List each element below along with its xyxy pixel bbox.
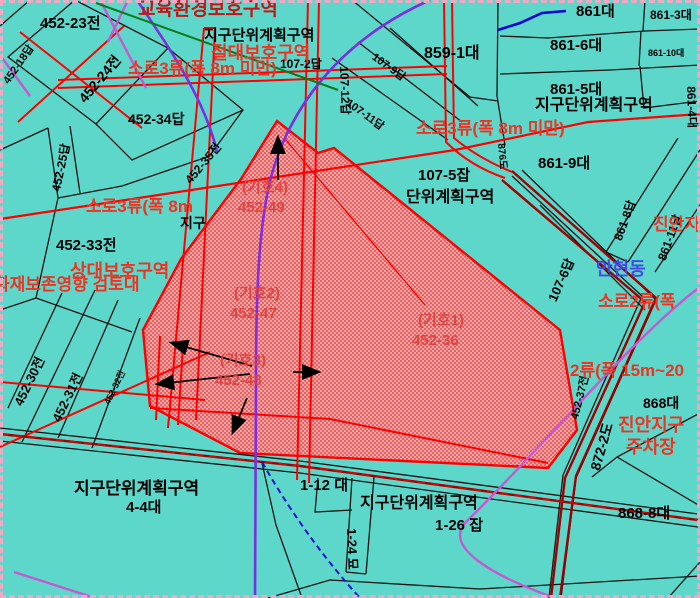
map-canvas[interactable]: 452-23전 452-18답 452-24전 452-34답 452-25답 … (0, 0, 700, 598)
parcel-label-107-5: 107-5잡 (418, 168, 470, 183)
road-label-jungro2-right: 2류(폭 15m~20 (570, 362, 684, 379)
parcel-label-861-10: 861-10대 (648, 49, 684, 58)
parcel-label-861-5: 861-5대 (550, 82, 602, 97)
parcel-label-452-34: 452-34답 (128, 112, 184, 126)
symbol-label-2-title: (기호2) (234, 286, 280, 301)
parcel-label-861-4: 861-4대 (685, 86, 698, 128)
zone-label-district-top: 지구단위계획구역 (204, 28, 314, 43)
parcel-label-4-4: 4-4대 (126, 500, 161, 515)
parcel-label-868-8: 868-8대 (618, 506, 670, 521)
road-label-soro3-mid: 소로3류(폭 8m 미만) (416, 120, 565, 137)
parcel-label-868: 868대 (643, 396, 679, 410)
parcel-label-861: 861대 (576, 4, 615, 19)
district-label-parking: 주차장 (626, 438, 676, 456)
symbol-label-4-title: (기호4) (242, 180, 288, 195)
parcel-label-452-33: 452-33전 (56, 238, 117, 253)
zone-label-education-protection: 교육환경보호구역 (138, 0, 278, 19)
parcel-label-876: 876도 (495, 143, 507, 170)
place-label-anhyeondong: 안현동 (596, 260, 646, 278)
symbol-label-1-lot: 452-36 (412, 333, 459, 348)
symbol-label-1-title: (기호1) (418, 313, 464, 328)
symbol-label-3-title: (기호3) (220, 353, 266, 368)
parcel-label-859-1: 859-1대 (424, 46, 480, 62)
road-label-soro2-right: 소로2류(폭 (598, 293, 676, 310)
parcel-label-861-3: 861-3대 (650, 9, 692, 21)
parcel-label-1-24: 1-24 묘 (345, 528, 359, 570)
district-label-jinan-partial: 진안지 (653, 216, 700, 233)
zone-label-district-mid: 단위계획구역 (406, 190, 494, 206)
parcel-label-861-6: 861-6대 (550, 38, 602, 53)
parcel-label-452-23: 452-23전 (40, 16, 101, 31)
road-label-soro3-top: 소로3류(폭 8m 미만) (128, 60, 277, 77)
symbol-label-2-lot: 452-47 (230, 306, 277, 321)
zone-label-district-bottom: 지구단위계획구역 (360, 496, 478, 512)
zone-label-district-bottom-left: 지구단위계획구역 (74, 480, 199, 497)
parcel-label-1-26: 1-26 잡 (435, 518, 483, 533)
zone-label-district-right: 지구단위계획구역 (535, 98, 653, 114)
parcel-label-861-9: 861-9대 (538, 156, 590, 171)
parcel-label-jigu-fragment: 지구 (180, 216, 206, 230)
district-label-jinan-jigu: 진안지구 (618, 416, 684, 434)
symbol-label-4-lot: 452-49 (238, 200, 285, 215)
parcel-label-1-12: 1-12 대 (300, 478, 348, 493)
road-label-soro3-left: 소로3류(폭 8m (86, 198, 193, 215)
symbol-label-3-lot: 452-48 (215, 373, 262, 388)
zone-label-heritage-review: 화재보존영향 검토대 (0, 276, 139, 293)
